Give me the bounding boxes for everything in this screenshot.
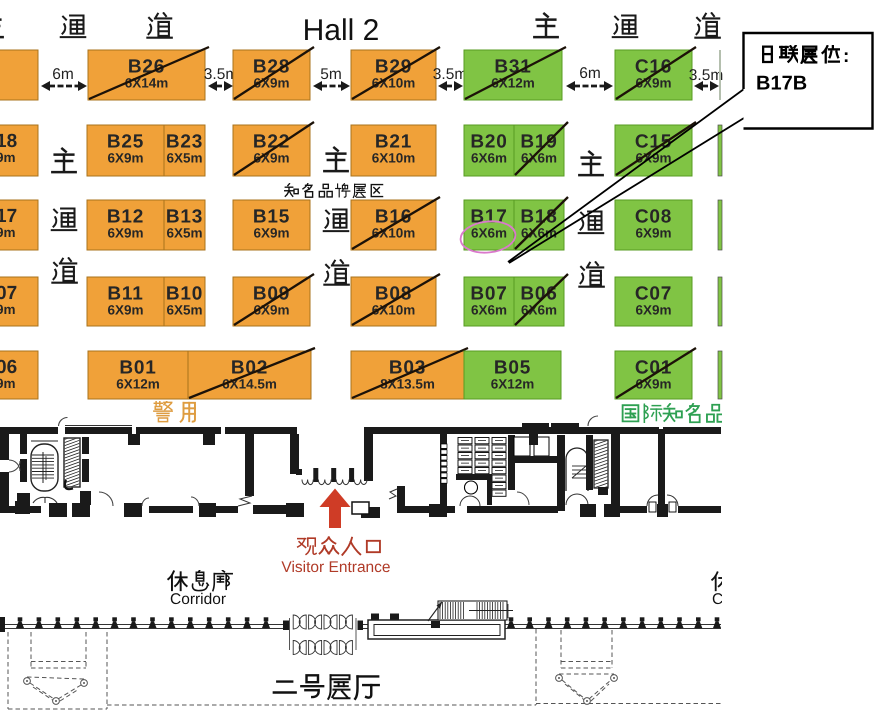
svg-text:9m: 9m [0,302,16,317]
svg-text:18: 18 [0,131,17,152]
svg-text:07: 07 [0,283,17,304]
svg-text:5m: 5m [320,66,342,83]
svg-text:3.5m: 3.5m [433,66,467,83]
svg-text:6X9m: 6X9m [635,226,671,241]
svg-text:6X12m: 6X12m [116,377,160,392]
svg-text:6X9m: 6X9m [107,303,143,318]
svg-text:6X6m: 6X6m [471,226,507,241]
svg-text:6m: 6m [52,66,74,83]
svg-text:6X5m: 6X5m [166,226,202,241]
svg-text:6X9m: 6X9m [253,226,289,241]
svg-text:6m: 6m [579,65,601,82]
svg-text:6X12m: 6X12m [491,377,535,392]
svg-text:6X14.5m: 6X14.5m [222,377,277,392]
svg-text:B13: B13 [166,207,203,228]
svg-text:C07: C07 [635,284,672,305]
svg-text:Corridor: Corridor [170,591,226,608]
svg-text:B21: B21 [375,132,412,153]
svg-text:B10: B10 [166,284,203,305]
svg-text:6X9m: 6X9m [635,303,671,318]
svg-text:B01: B01 [119,358,156,379]
svg-text:Hall 2: Hall 2 [303,14,380,47]
svg-text:B23: B23 [166,132,203,153]
svg-text:B19: B19 [520,132,557,153]
svg-text:6X5m: 6X5m [166,151,202,166]
svg-text:17: 17 [0,206,17,227]
svg-text:9m: 9m [0,376,16,391]
svg-text:06: 06 [0,357,17,378]
svg-text:B20: B20 [470,132,507,153]
svg-text:B05: B05 [494,358,531,379]
svg-text:6X9m: 6X9m [107,226,143,241]
svg-text:B12: B12 [107,207,144,228]
svg-text:6X5m: 6X5m [166,303,202,318]
svg-text:3.5m: 3.5m [689,67,723,84]
svg-text:B25: B25 [107,132,144,153]
svg-text:B15: B15 [253,207,290,228]
svg-text::: : [843,46,849,67]
svg-text:6X6m: 6X6m [471,303,507,318]
svg-text:6X9m: 6X9m [635,377,671,392]
svg-text:B11: B11 [107,284,143,305]
svg-text:C08: C08 [635,207,672,228]
svg-text:Visitor Entrance: Visitor Entrance [281,559,390,576]
svg-text:6X9m: 6X9m [107,151,143,166]
svg-text:6X14m: 6X14m [125,76,169,91]
svg-text:6X6m: 6X6m [471,151,507,166]
svg-text:9m: 9m [0,150,16,165]
svg-text:9m: 9m [0,225,16,240]
svg-text:B07: B07 [470,284,507,305]
svg-text:6X10m: 6X10m [372,151,416,166]
svg-text:8X13.5m: 8X13.5m [380,377,435,392]
svg-text:B17B: B17B [756,73,807,95]
